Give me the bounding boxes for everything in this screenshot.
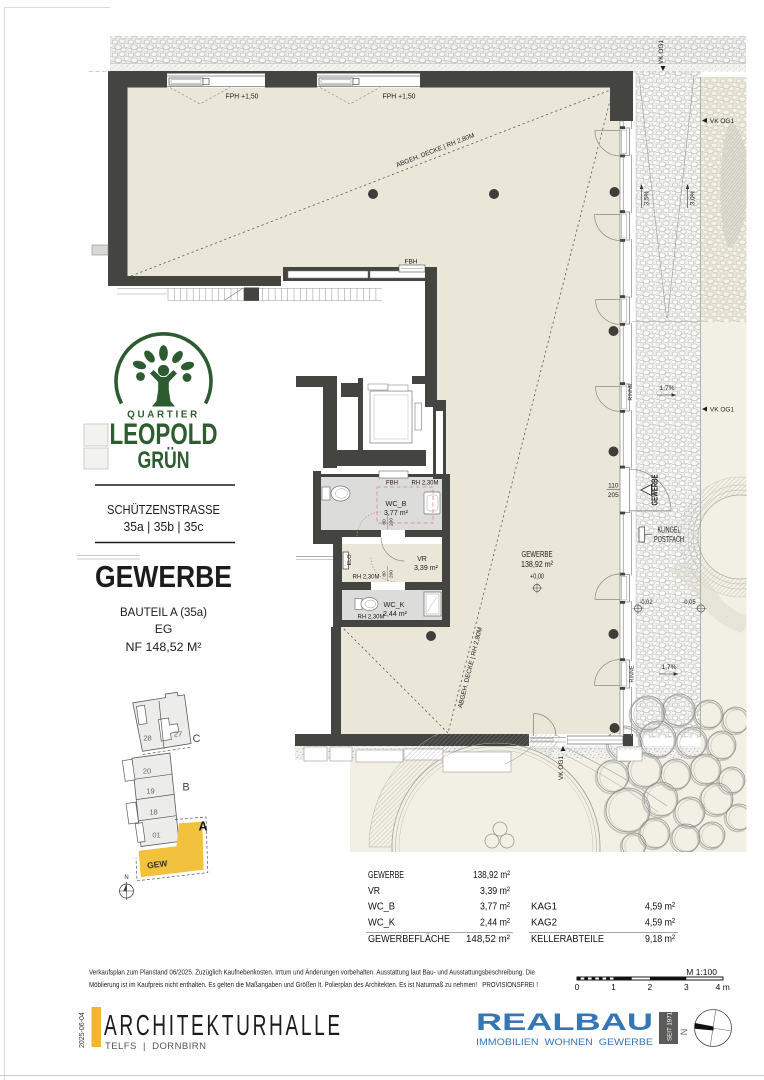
svg-text:200: 200 xyxy=(389,570,395,578)
svg-text:RINNE: RINNE xyxy=(628,383,634,400)
svg-text:C: C xyxy=(193,733,201,745)
svg-text:EG: EG xyxy=(155,622,173,636)
svg-text:GEWERBE: GEWERBE xyxy=(368,870,404,881)
svg-text:-0,02: -0,02 xyxy=(640,599,653,606)
svg-text:ARCHITEKTURHALLE: ARCHITEKTURHALLE xyxy=(104,1010,343,1042)
svg-text:FPH +1,50: FPH +1,50 xyxy=(383,94,416,101)
svg-text:WC_K: WC_K xyxy=(384,602,405,609)
svg-text:Möblierung ist im Kaufpreis ni: Möblierung ist im Kaufpreis nicht enthal… xyxy=(89,980,538,989)
svg-text:1,7%: 1,7% xyxy=(660,385,675,392)
svg-text:VK OG1: VK OG1 xyxy=(558,756,565,781)
svg-text:2025-06-04: 2025-06-04 xyxy=(79,1012,86,1048)
svg-text:BAUTEIL A (35a): BAUTEIL A (35a) xyxy=(120,605,207,619)
svg-text:TELFS | DORNBIRN: TELFS | DORNBIRN xyxy=(105,1041,206,1052)
svg-text:28: 28 xyxy=(143,734,151,743)
svg-text:+0,00: +0,00 xyxy=(530,574,544,581)
svg-text:80: 80 xyxy=(382,571,388,577)
svg-text:VR: VR xyxy=(368,886,380,897)
svg-text:3: 3 xyxy=(684,982,689,992)
svg-text:KLINGEL: KLINGEL xyxy=(658,526,681,535)
svg-text:WC_K: WC_K xyxy=(368,918,395,929)
svg-text:80: 80 xyxy=(382,519,388,525)
svg-text:VK OG1: VK OG1 xyxy=(710,407,735,414)
svg-text:RH 2,30M: RH 2,30M xyxy=(357,615,384,621)
svg-text:FPH +1,50: FPH +1,50 xyxy=(226,94,259,101)
svg-text:GRÜN: GRÜN xyxy=(138,447,190,474)
svg-text:138,92 m²: 138,92 m² xyxy=(473,870,510,881)
svg-text:18: 18 xyxy=(149,808,157,817)
svg-text:VK OG1: VK OG1 xyxy=(710,118,735,125)
svg-text:01: 01 xyxy=(152,831,160,840)
svg-text:WC_B: WC_B xyxy=(386,501,407,508)
svg-text:3,39 m²: 3,39 m² xyxy=(414,565,439,572)
svg-text:POSTFACH: POSTFACH xyxy=(654,535,684,544)
svg-text:Verkaufsplan zum Planstand 06/: Verkaufsplan zum Planstand 06/2025. Zuzü… xyxy=(89,968,535,977)
svg-text:WC_B: WC_B xyxy=(368,902,395,913)
svg-text:ELO: ELO xyxy=(347,554,353,566)
svg-text:0: 0 xyxy=(575,982,580,992)
svg-text:20: 20 xyxy=(143,767,151,776)
svg-text:35a | 35b | 35c: 35a | 35b | 35c xyxy=(124,519,204,534)
svg-text:GEWERBE: GEWERBE xyxy=(522,549,553,559)
svg-text:110: 110 xyxy=(608,483,619,490)
svg-text:9,18 m²: 9,18 m² xyxy=(645,934,675,945)
svg-text:A: A xyxy=(198,820,207,834)
svg-text:GEWERBE: GEWERBE xyxy=(651,474,660,505)
svg-text:KAG1: KAG1 xyxy=(531,902,557,913)
svg-text:205: 205 xyxy=(608,492,619,499)
svg-text:IMMOBILIEN WOHNEN GEWERBE: IMMOBILIEN WOHNEN GEWERBE xyxy=(476,1037,653,1048)
svg-text:27: 27 xyxy=(174,730,182,739)
svg-text:138,92 m²: 138,92 m² xyxy=(521,559,553,569)
svg-text:FBH: FBH xyxy=(405,259,418,266)
svg-text:2,44 m²: 2,44 m² xyxy=(383,611,408,618)
svg-text:REALBAU: REALBAU xyxy=(476,1009,653,1036)
svg-text:RH 2,30M: RH 2,30M xyxy=(352,575,379,581)
svg-text:M 1:100: M 1:100 xyxy=(686,967,717,977)
svg-text:B: B xyxy=(182,782,189,794)
svg-text:4 m: 4 m xyxy=(716,982,730,992)
svg-text:SCHÜTZENSTRASSE: SCHÜTZENSTRASSE xyxy=(107,502,220,517)
svg-text:RH 2,30M: RH 2,30M xyxy=(411,481,438,487)
svg-text:SEIT 1971: SEIT 1971 xyxy=(667,1011,674,1041)
svg-text:N: N xyxy=(124,875,128,881)
svg-text:2,44 m²: 2,44 m² xyxy=(480,918,510,929)
svg-text:-0,05: -0,05 xyxy=(683,599,696,606)
svg-text:3,77 m²: 3,77 m² xyxy=(384,510,409,517)
svg-text:3,0%: 3,0% xyxy=(690,190,697,205)
svg-text:3,5%: 3,5% xyxy=(644,190,651,205)
svg-text:VR: VR xyxy=(417,556,427,563)
svg-text:KAG2: KAG2 xyxy=(531,918,557,929)
svg-text:KELLERABTEILE: KELLERABTEILE xyxy=(531,934,604,945)
svg-text:NF 148,52 M²: NF 148,52 M² xyxy=(126,640,202,654)
svg-text:RINNE: RINNE xyxy=(630,665,636,682)
svg-text:3,77 m²: 3,77 m² xyxy=(480,902,510,913)
svg-text:19: 19 xyxy=(146,787,154,796)
svg-text:1,7%: 1,7% xyxy=(662,664,677,671)
svg-text:4,59 m²: 4,59 m² xyxy=(645,902,675,913)
svg-text:3,39 m²: 3,39 m² xyxy=(480,886,510,897)
svg-text:FBH: FBH xyxy=(386,481,398,487)
svg-text:2: 2 xyxy=(648,982,653,992)
svg-text:GEWERBEFLÄCHE: GEWERBEFLÄCHE xyxy=(368,933,450,945)
svg-text:VK OG1: VK OG1 xyxy=(658,40,665,65)
svg-text:4,59 m²: 4,59 m² xyxy=(645,918,675,929)
svg-text:148,52 m²: 148,52 m² xyxy=(466,934,511,945)
svg-text:N: N xyxy=(679,1029,689,1036)
svg-text:200: 200 xyxy=(389,518,395,526)
svg-text:1: 1 xyxy=(611,982,616,992)
svg-text:GEWERBE: GEWERBE xyxy=(95,559,232,594)
